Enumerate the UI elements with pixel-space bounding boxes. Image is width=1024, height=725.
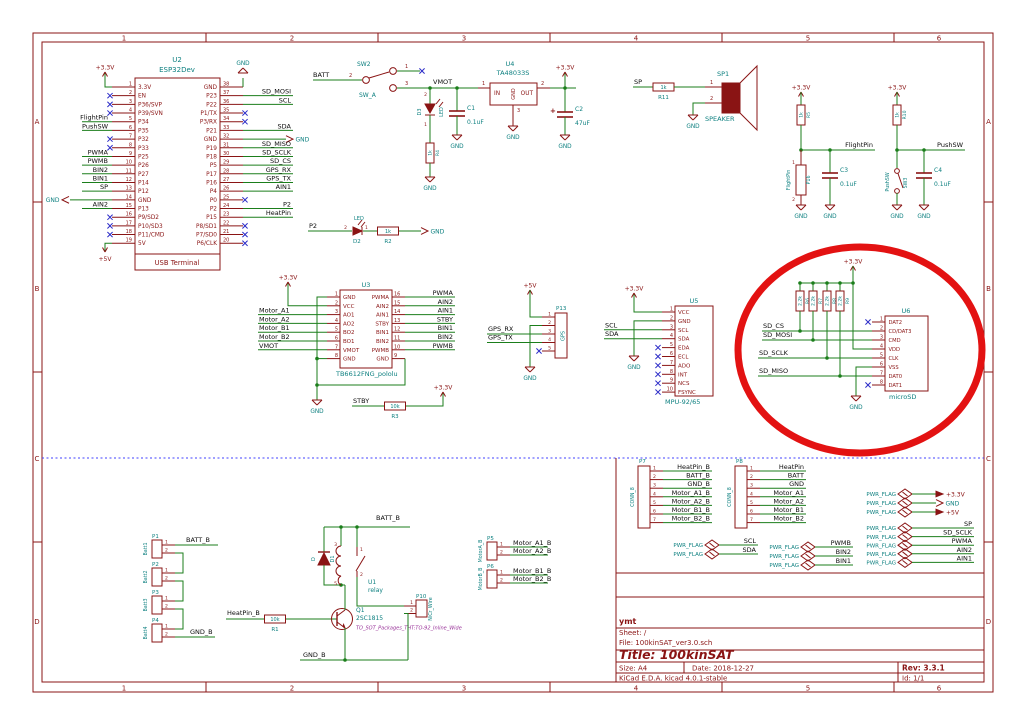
wire xyxy=(406,392,443,406)
pin-number: 5 xyxy=(653,500,656,506)
pin-number: 1 xyxy=(335,292,338,298)
pin-number: 4 xyxy=(880,344,883,350)
pin-name: P23 xyxy=(206,94,217,100)
net-label: SDA xyxy=(743,546,757,554)
pin-number: 1 xyxy=(548,312,551,318)
component-U4[interactable]: U4TA48033SINOUTGND123GND+3.3V xyxy=(478,60,576,141)
resistor-value: 1k xyxy=(799,112,805,118)
pin-name: P27 xyxy=(138,172,149,178)
line xyxy=(369,72,389,78)
value: SPEAKER xyxy=(705,115,735,123)
line xyxy=(710,552,715,556)
pwr-flag-text: PWR_FLAG xyxy=(866,526,896,532)
pin-name: P5 xyxy=(210,163,217,169)
ref: P10 xyxy=(416,594,427,600)
pin-name: P32 xyxy=(138,137,149,143)
pin-number: 23 xyxy=(223,212,229,218)
resistor-value: 10k xyxy=(390,404,399,410)
frame-col-label: 5 xyxy=(806,685,810,693)
net-label: P2 xyxy=(283,201,291,209)
ref: Q1 xyxy=(356,607,365,614)
pin-name: P19 xyxy=(206,146,217,152)
connector-P7[interactable]: P7CONN_81HeatPin_B2BATT_B3GND_B4Motor_A1… xyxy=(630,459,712,528)
line xyxy=(238,68,243,73)
glabel-arrow xyxy=(936,500,943,507)
gnd-symbol-label: GND xyxy=(450,144,464,150)
pin-name: P7/SD0 xyxy=(196,233,217,239)
power-label: +3.3V xyxy=(946,491,966,498)
component-Q1[interactable]: Q12SC1815TO_SOT_Packages_THT:TO-92_Inlin… xyxy=(332,585,462,660)
gnd-symbol-label: GND xyxy=(917,214,931,220)
glabel-arrow xyxy=(62,196,69,203)
pin-name: GND xyxy=(138,198,152,204)
net-label: PWMB xyxy=(831,539,851,547)
pin-number: 3 xyxy=(335,309,338,315)
pin-number: 6 xyxy=(670,351,673,357)
pin-number: 2 xyxy=(349,73,352,79)
conn-body xyxy=(487,570,497,588)
component-SW2[interactable]: BATT2SW2SW_A13 xyxy=(313,61,478,99)
line xyxy=(356,556,365,571)
pin-name: P35 xyxy=(138,128,149,134)
net-label: AIN2 xyxy=(957,546,972,554)
pin-number: 7 xyxy=(653,517,656,523)
ref: P13 xyxy=(556,306,567,312)
power-label: +3.3V xyxy=(434,385,454,392)
net-label: SD_MISO xyxy=(262,140,291,148)
pin-number: 4 xyxy=(653,491,656,497)
pwr-flag-text: PWR_FLAG xyxy=(673,552,703,558)
net-label: AIN1 xyxy=(957,554,972,562)
pin-number: 9 xyxy=(129,151,132,157)
pwr-flag-text: PWR_FLAG xyxy=(866,535,896,541)
frame-col-label: 1 xyxy=(122,685,126,693)
pin-number: 11 xyxy=(126,168,132,174)
pin-number: 31 xyxy=(223,142,229,148)
net-label: Motor_B2 xyxy=(773,515,804,523)
connector-P6[interactable]: P6MotorB_B1Motor_B1_B2Motor_B2_B xyxy=(478,564,551,590)
ref: D3 xyxy=(417,108,423,115)
pin-name: PWMB xyxy=(372,348,390,354)
net-label: BIN2 xyxy=(93,166,108,174)
value: Batt4 xyxy=(143,626,149,639)
footprint: TO_SOT_Packages_THT:TO-92_Inline_Wide xyxy=(356,626,462,632)
component-R1[interactable]: HeatPin_B10kR1 xyxy=(226,609,337,633)
pin-name: DAT1 xyxy=(889,383,903,389)
pin-name: FSYNC xyxy=(678,390,696,396)
pin-number: 16 xyxy=(126,212,132,218)
gnd-symbol-label: GND xyxy=(627,365,641,371)
line xyxy=(903,492,908,496)
component-U5[interactable]: U5MPU-92/651VCC+3.3V2GNDGND3SCLSCL4SDASD… xyxy=(604,286,713,407)
pin-number: 2 xyxy=(750,474,753,480)
file-text: File: 100kinSAT_ver3.0.sch xyxy=(619,639,712,647)
pwr-flag-text: PWR_FLAG xyxy=(866,510,896,516)
pin-name: CD/DAT3 xyxy=(889,329,912,335)
pin-number: 4 xyxy=(129,108,132,114)
net-label: AIN1 xyxy=(438,307,453,315)
pin-name: SDA xyxy=(678,337,690,343)
line xyxy=(565,135,570,140)
net-label: SD_MISO xyxy=(759,367,788,375)
ref: P1 xyxy=(152,534,159,540)
component-U3[interactable]: U3TB6612FNG_pololu1GND2VCC3AO1Motor_A14A… xyxy=(258,275,455,416)
line xyxy=(825,205,830,210)
pin-name: VSS xyxy=(889,365,899,371)
line xyxy=(629,356,634,361)
cap-ref: C4 xyxy=(934,167,942,174)
gnd-symbol-label: GND xyxy=(558,144,572,150)
pin-number: 3 xyxy=(334,542,337,548)
pin-number: 35 xyxy=(223,108,229,114)
glabel-text: GND xyxy=(46,197,60,204)
gnd-symbol-label: GND xyxy=(236,61,250,67)
pin-number: 18 xyxy=(126,229,132,235)
net-label: GND_B xyxy=(190,628,213,636)
pin-number: 4 xyxy=(335,318,338,324)
pin-name: OUT xyxy=(521,91,534,97)
value: NiCr_Wire xyxy=(428,597,434,620)
line xyxy=(430,177,435,182)
pin-number: 2 xyxy=(360,572,363,578)
pin-number: 7 xyxy=(335,344,338,350)
frame-col-label: 1 xyxy=(122,35,126,43)
pin-name: BIN2 xyxy=(376,339,389,345)
size-text: Size: A4 xyxy=(619,665,648,673)
pin-name: BO1 xyxy=(343,339,355,345)
net-label: SCL xyxy=(605,321,618,329)
pin-number: 1 xyxy=(165,540,168,546)
speaker-cone xyxy=(740,66,757,130)
junction xyxy=(315,357,319,361)
net-label: GPS_TX xyxy=(266,174,291,182)
pin-number: 1 xyxy=(500,570,503,576)
ref: U6 xyxy=(902,307,911,315)
pin-number: 1 xyxy=(165,568,168,574)
connector-P5[interactable]: P5MotorA_B1Motor_A1_B2Motor_A2_B xyxy=(478,536,551,562)
resistor-ref: R5 xyxy=(806,112,812,118)
component-R3-STBY[interactable]: STBY10kR3+3.3V xyxy=(352,385,453,421)
line xyxy=(801,205,806,210)
component-C3[interactable]: C30.1uFGND xyxy=(822,148,857,220)
wire xyxy=(693,103,705,115)
pwr-flag-text: PWR_FLAG xyxy=(866,492,896,498)
pin-number: 27 xyxy=(223,177,229,183)
line xyxy=(806,545,811,549)
pwr-flag-text: PWR_FLAG xyxy=(866,552,896,558)
gnd-symbol-label: GND xyxy=(686,124,700,130)
cap-ref: C3 xyxy=(840,167,848,174)
resistor-value: 1k xyxy=(895,112,901,118)
net-label: SD_SCLK xyxy=(759,349,789,357)
power-label: +5V xyxy=(524,283,538,290)
frame-col-label: 3 xyxy=(462,685,466,693)
component-C1[interactable]: C10.1uFGND xyxy=(449,88,484,150)
speaker-body xyxy=(722,83,740,113)
rev-text: Rev: 3.3.1 xyxy=(902,664,945,673)
pin-name: AO2 xyxy=(343,321,355,327)
net-label: BATT_B xyxy=(686,472,710,480)
wire xyxy=(175,553,183,573)
ref: D2 xyxy=(353,239,361,245)
line xyxy=(710,543,715,547)
title-text: Title: 100kinSAT xyxy=(619,647,735,662)
connector-P8[interactable]: P8CONN_81HeatPin2BATT3GND4Motor_A15Motor… xyxy=(727,459,806,528)
pin-name: BIN1 xyxy=(376,330,389,336)
resistor-ref: R9 xyxy=(845,298,851,304)
value: Batt3 xyxy=(143,598,149,611)
pin-name: P16 xyxy=(206,180,217,186)
pin-name: P13 xyxy=(138,207,149,213)
pin-name: AIN1 xyxy=(376,313,389,319)
frame-col-label: 2 xyxy=(290,685,294,693)
poly xyxy=(936,509,943,515)
pin-number: 10 xyxy=(126,160,132,166)
pin-number: 4 xyxy=(750,491,753,497)
component-U1-relay[interactable]: BATT_BDD13512U1relay xyxy=(311,514,410,606)
net-label: GND xyxy=(789,480,804,488)
junction xyxy=(315,383,319,387)
pin-name: GND xyxy=(511,88,517,100)
wire xyxy=(634,293,662,312)
gnd-symbol-label: GND xyxy=(890,214,904,220)
pin-name: AIN2 xyxy=(376,304,389,310)
line xyxy=(688,115,693,120)
gnd-symbol-label: GND xyxy=(823,214,837,220)
component-D2[interactable]: P22LEDD211kR2GND xyxy=(308,216,445,245)
pin-number: 1 xyxy=(670,307,673,313)
pin-number: 25 xyxy=(223,194,229,200)
pin-number: 29 xyxy=(223,160,229,166)
net-label: Motor_B2_B xyxy=(513,575,551,583)
resistor-value: 2.2k xyxy=(811,296,817,306)
pin-name: P26 xyxy=(138,163,149,169)
pin-number: 13 xyxy=(394,318,400,324)
net-label: Motor_A1_B xyxy=(513,539,551,547)
net-label: Motor_A2 xyxy=(259,315,290,323)
line xyxy=(312,400,317,405)
gnd-symbol-label: GND xyxy=(523,376,537,382)
power-label: +3.3V xyxy=(625,286,645,293)
net-label: HeatPin_B xyxy=(677,463,710,471)
pin-number: 7 xyxy=(750,517,753,523)
net-label: BIN2 xyxy=(438,333,453,341)
pin-number: 1 xyxy=(165,624,168,630)
pin-number: 9 xyxy=(670,378,673,384)
frame-row-label: D xyxy=(34,618,39,626)
sheet-text: Sheet: / xyxy=(619,629,647,637)
pin-number: 24 xyxy=(223,203,229,209)
pin-number: 2 xyxy=(165,576,168,582)
pwr-flags[interactable]: PWR_FLAGSCLPWR_FLAGSDAPWR_FLAGPWMBPWR_FL… xyxy=(673,489,974,570)
resistor-value: 1k xyxy=(428,150,434,156)
component-D3[interactable]: 21D3LED1kR4GND xyxy=(417,88,445,192)
pin-number: 26 xyxy=(223,186,229,192)
pin-number: 2 xyxy=(410,608,413,614)
line xyxy=(897,205,902,210)
pwr-flag-text: PWR_FLAG xyxy=(866,561,896,567)
value: Batt2 xyxy=(143,570,149,583)
pin-number: 12 xyxy=(126,177,132,183)
pin-name: ADO xyxy=(678,363,691,369)
component-SP1[interactable]: SP1kR1112GNDSP1SPEAKER xyxy=(633,66,757,130)
wire xyxy=(853,283,872,349)
pin-number: 32 xyxy=(223,134,229,140)
pin-number: 33 xyxy=(223,125,229,131)
net-label: SCL xyxy=(744,537,757,545)
pin-number: 3 xyxy=(653,483,656,489)
pin-name: VDD xyxy=(889,347,901,353)
line xyxy=(508,126,513,131)
gnd-symbol-label: GND xyxy=(423,186,437,192)
frame-row-label: A xyxy=(986,118,991,126)
pin-name: VMOT xyxy=(343,348,360,354)
net-label: Motor_B1_B xyxy=(672,506,710,514)
component-SW3-PushSW[interactable]: +3.3V1kR10PushSWPushSWSW3GND xyxy=(885,85,965,221)
line xyxy=(425,177,430,182)
net-label: VMOT xyxy=(259,342,278,350)
gnd-symbol-label: GND xyxy=(310,409,324,415)
pin-name: P18 xyxy=(206,154,217,160)
tool-text: KiCad E.D.A. kicad 4.0.1-stable xyxy=(619,675,727,683)
net-label: STBY xyxy=(353,397,369,405)
net-label: Motor_B1 xyxy=(773,506,804,514)
poly xyxy=(318,553,330,565)
line xyxy=(903,510,908,514)
resistor-ref: R2 xyxy=(384,239,391,245)
pin-number: 1 xyxy=(360,547,363,553)
wire xyxy=(175,609,183,629)
net-label: BIN1 xyxy=(93,174,108,182)
ref: P7 xyxy=(639,459,646,465)
cap-value: 0.1uF xyxy=(840,181,857,188)
pin-number: 2 xyxy=(670,315,673,321)
line xyxy=(903,552,908,556)
net-label: PWMA xyxy=(433,289,454,297)
line xyxy=(903,526,908,530)
line xyxy=(898,174,903,189)
ref: P3 xyxy=(152,590,159,596)
line xyxy=(830,205,835,210)
conn-body xyxy=(152,596,162,614)
pin-number: 1 xyxy=(500,542,503,548)
pin-name: EN xyxy=(138,94,146,100)
gnd-symbol-label: GND xyxy=(849,405,863,411)
value: TA48033S xyxy=(496,69,530,77)
value: 2SC1815 xyxy=(356,615,383,622)
resistor-value: 1k xyxy=(660,85,666,91)
net-label: FlightPin xyxy=(845,141,873,149)
pin-number: 1 xyxy=(405,64,408,70)
net-label: STBY xyxy=(437,315,453,323)
pin-name: IN xyxy=(494,91,500,97)
value: ESP32Dev xyxy=(159,66,195,74)
line xyxy=(851,396,856,401)
pin-name: SCL xyxy=(678,328,689,334)
frame-row-label: D xyxy=(986,618,991,626)
pwr-flag-text: PWR_FLAG xyxy=(673,543,703,549)
pin-name: P0 xyxy=(210,198,217,204)
pin-number: 3 xyxy=(548,329,551,335)
pin-name: P3/RX xyxy=(200,120,217,126)
net-label: BATT xyxy=(788,472,804,480)
conn-body xyxy=(796,165,806,195)
pin-number: 7 xyxy=(880,371,883,377)
net-label: VMOT xyxy=(433,78,452,86)
pin-name: P34 xyxy=(138,120,149,126)
ref: U1 xyxy=(368,579,376,586)
net-label: Motor_B1_B xyxy=(513,567,551,575)
component-U2-ESP32Dev[interactable]: USB TerminalU2ESP32Dev13.3V+3.3V2EN3P36/… xyxy=(46,56,310,270)
pin-number: 38 xyxy=(223,82,229,88)
poly xyxy=(425,104,435,113)
ref: SW3 xyxy=(903,178,909,189)
pin-name: INT xyxy=(678,372,688,378)
pin-number: 10 xyxy=(667,387,673,393)
component-C4[interactable]: C40.1uFGND xyxy=(916,148,951,220)
pin-name: P39/SVN xyxy=(138,111,163,117)
resistor-ref: R10 xyxy=(902,110,908,119)
line xyxy=(317,400,322,405)
conn-body xyxy=(152,568,162,586)
net-label: PushSW xyxy=(937,141,964,149)
net-label: SD_MOSI xyxy=(262,88,291,96)
pwr-flag-text: PWR_FLAG xyxy=(769,545,799,551)
pin-number: 15 xyxy=(126,203,132,209)
line xyxy=(530,367,535,372)
pin-name: P14 xyxy=(138,180,149,186)
pwr-flag-text: PWR_FLAG xyxy=(769,563,799,569)
value: MotorB_B xyxy=(478,568,484,591)
pin-number: 3 xyxy=(405,81,408,87)
value: LED xyxy=(354,216,364,222)
frame-col-label: 6 xyxy=(937,685,942,693)
pin-number: 8 xyxy=(670,369,673,375)
frame-row-label: B xyxy=(986,285,991,293)
pin-name: GND xyxy=(678,319,691,325)
pin-name: P11/CMD xyxy=(138,233,165,239)
wire xyxy=(856,367,872,396)
pin-number: 11 xyxy=(394,336,400,342)
pin-number: 4 xyxy=(670,333,673,339)
component-U6-microSD[interactable]: U6microSD+3.3V2.2kR62.2kR72.2kR82.2kR9SD… xyxy=(758,259,928,412)
component-P13-GPS[interactable]: +5VGNDGPS_RXGPS_TX12345P13GPS xyxy=(487,283,567,383)
value: D xyxy=(311,557,317,561)
cap-value: 0.1uF xyxy=(467,119,484,126)
connector-batteries[interactable]: P1Batt112P2Batt212P3Batt312P4Batt412BATT… xyxy=(143,534,218,642)
pin-name: P21 xyxy=(206,128,217,134)
pin-name: P9/SD2 xyxy=(138,215,159,221)
net-label: FlightPin xyxy=(80,114,108,122)
net-label: GND_B xyxy=(687,480,710,488)
component-C2[interactable]: C247uF+GND xyxy=(550,88,590,150)
line xyxy=(903,543,908,547)
line xyxy=(436,99,440,104)
pin-name: 5V xyxy=(138,241,146,247)
conn-body xyxy=(735,466,747,528)
resistor-value: 10k xyxy=(270,617,279,623)
pin-number: 10 xyxy=(394,344,400,350)
ref: U4 xyxy=(506,60,515,68)
pin-number: 1 xyxy=(792,160,795,166)
pin-name: P12 xyxy=(138,189,149,195)
pin-number: 2 xyxy=(541,81,544,87)
line xyxy=(452,135,457,140)
glabel-arrow xyxy=(421,228,428,235)
pin-number: 1 xyxy=(710,80,713,86)
line xyxy=(856,396,861,401)
pin-number: 8 xyxy=(129,142,132,148)
